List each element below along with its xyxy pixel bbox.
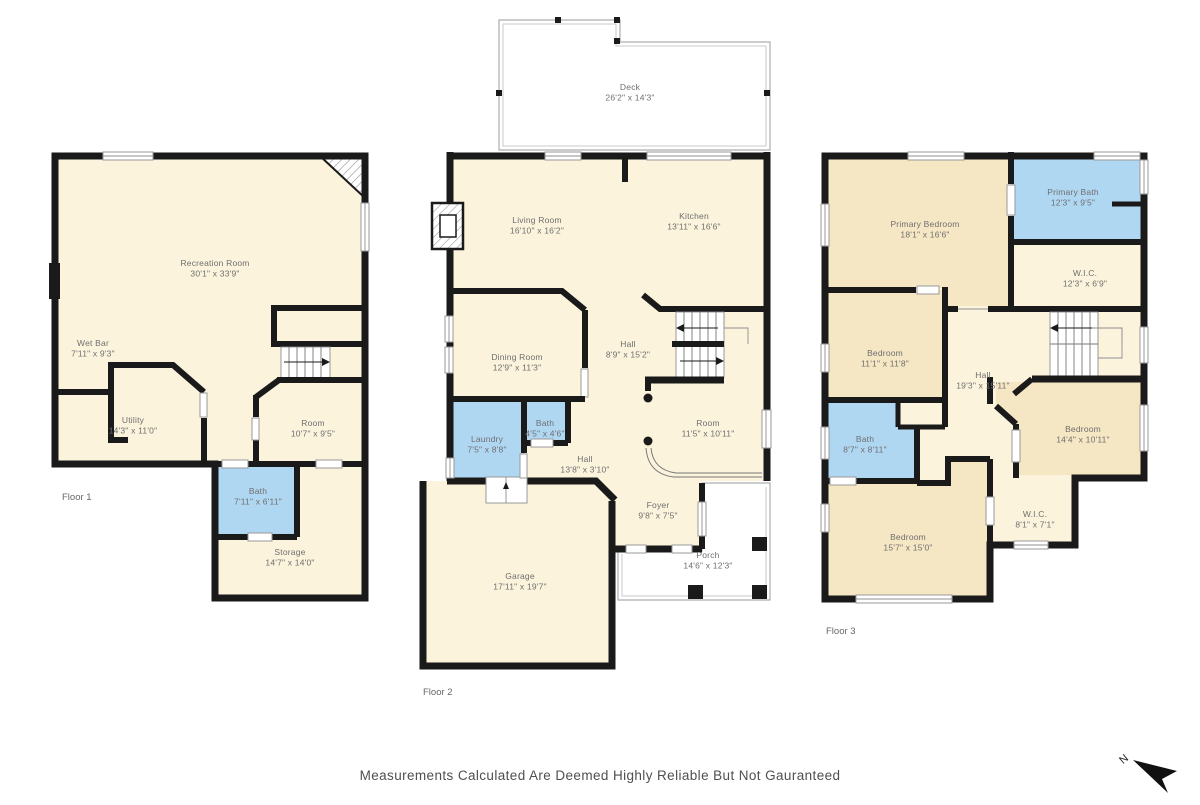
room-dims: 8'1" x 7'1" [1015, 520, 1054, 530]
room-label: Room [301, 418, 324, 428]
room-dims: 7'11" x 9'3" [71, 349, 115, 359]
door-opening [531, 439, 553, 447]
north-arrow-glyph [1133, 760, 1177, 793]
north-arrow: N [1117, 752, 1177, 793]
room-label: Utility [122, 415, 145, 425]
room-label: Living Room [512, 215, 561, 225]
garage-entry-door [486, 477, 527, 503]
room-dims: 4'5" x 4'6" [525, 429, 564, 439]
door-opening [248, 533, 272, 541]
room-label: Garage [505, 571, 535, 581]
room-label: Foyer [647, 500, 670, 510]
floor-1-plan [49, 152, 369, 598]
door-opening [1012, 430, 1020, 462]
room-dims: 13'11" x 16'6" [667, 222, 721, 232]
room-label: Bath [536, 418, 554, 428]
bedroom11-fill [825, 290, 942, 398]
room-label: Bedroom [890, 532, 926, 542]
room-label: W.I.C. [1023, 509, 1047, 519]
room-dims: 7'11" x 6'11" [234, 497, 282, 507]
room-dims: 30'1" x 33'9" [190, 269, 239, 279]
room-dims: 15'7" x 15'0" [883, 543, 932, 553]
room-label: Bedroom [1065, 424, 1101, 434]
door-opening [200, 393, 207, 417]
room-dims: 12'9" x 11'3" [493, 363, 542, 373]
room-label: Hall [577, 454, 592, 464]
room-dims: 10'7" x 9'5" [291, 429, 335, 439]
staircase-floor1 [281, 347, 330, 378]
room-label: Bath [249, 486, 267, 496]
floor1-caption: Floor 1 [62, 492, 92, 503]
fireplace [432, 203, 463, 249]
room-dims: 19'3" x 15'11" [956, 381, 1010, 391]
column [644, 437, 653, 446]
door-opening [1007, 185, 1015, 215]
room-label: Dining Room [491, 352, 542, 362]
room-dims: 8'7" x 8'11" [843, 445, 887, 455]
room-label: Hall [620, 339, 635, 349]
room-label: Bath [856, 434, 874, 444]
disclaimer-text: Measurements Calculated Are Deemed Highl… [360, 768, 841, 783]
north-label: N [1117, 752, 1131, 766]
column [644, 394, 653, 403]
room-label: Primary Bedroom [890, 219, 959, 229]
door-opening [672, 545, 692, 553]
door-opening [316, 460, 342, 468]
floor-plan-page: Recreation Room30'1" x 33'9" Wet Bar7'11… [0, 0, 1200, 805]
room-label: Storage [274, 547, 305, 557]
room-dims: 11'5" x 10'11" [682, 429, 735, 439]
room-dims: 11'1" x 11'8" [861, 359, 909, 369]
room-label: Primary Bath [1047, 187, 1099, 197]
room-dims: 12'3" x 6'9" [1063, 279, 1107, 289]
floor2-caption: Floor 2 [423, 687, 453, 698]
room-label: Deck [620, 82, 641, 92]
door-opening [581, 369, 588, 397]
door-opening [252, 418, 259, 440]
room-label: Laundry [471, 434, 504, 444]
floor-plan-canvas: Recreation Room30'1" x 33'9" Wet Bar7'11… [0, 0, 1200, 805]
door-opening [222, 460, 248, 468]
room-dims: 12'3" x 9'5" [1051, 198, 1095, 208]
door-opening [830, 477, 856, 485]
room-label: Wet Bar [77, 338, 109, 348]
door-opening [520, 454, 527, 478]
room-dims: 16'10" x 16'2" [510, 226, 564, 236]
room-dims: 14'4" x 10'11" [1056, 435, 1110, 445]
room-label: Bedroom [867, 348, 903, 358]
room-label: W.I.C. [1073, 268, 1097, 278]
room-dims: 17'11" x 19'7" [493, 582, 547, 592]
chimney-bump [49, 263, 60, 299]
room-dims: 14'7" x 14'0" [265, 558, 314, 568]
room-label: Porch [696, 550, 719, 560]
room-dims: 18'1" x 16'6" [900, 230, 949, 240]
room-dims: 8'9" x 15'2" [606, 350, 650, 360]
room-label: Hall [975, 370, 990, 380]
floor3-caption: Floor 3 [826, 626, 856, 637]
room-label: Room [696, 418, 719, 428]
door-opening [626, 545, 646, 553]
room-dims: 14'6" x 12'3" [683, 561, 732, 571]
room-dims: 13'8" x 3'10" [560, 465, 609, 475]
room-dims: 14'3" x 11'0" [109, 426, 158, 436]
room-label: Kitchen [679, 211, 709, 221]
door-opening [917, 286, 939, 294]
door-opening [986, 497, 994, 525]
room-dims: 7'5" x 8'8" [467, 445, 506, 455]
room-label: Recreation Room [180, 258, 249, 268]
room-dims: 9'8" x 7'5" [638, 511, 677, 521]
room-dims: 26'2" x 14'3" [605, 93, 654, 103]
